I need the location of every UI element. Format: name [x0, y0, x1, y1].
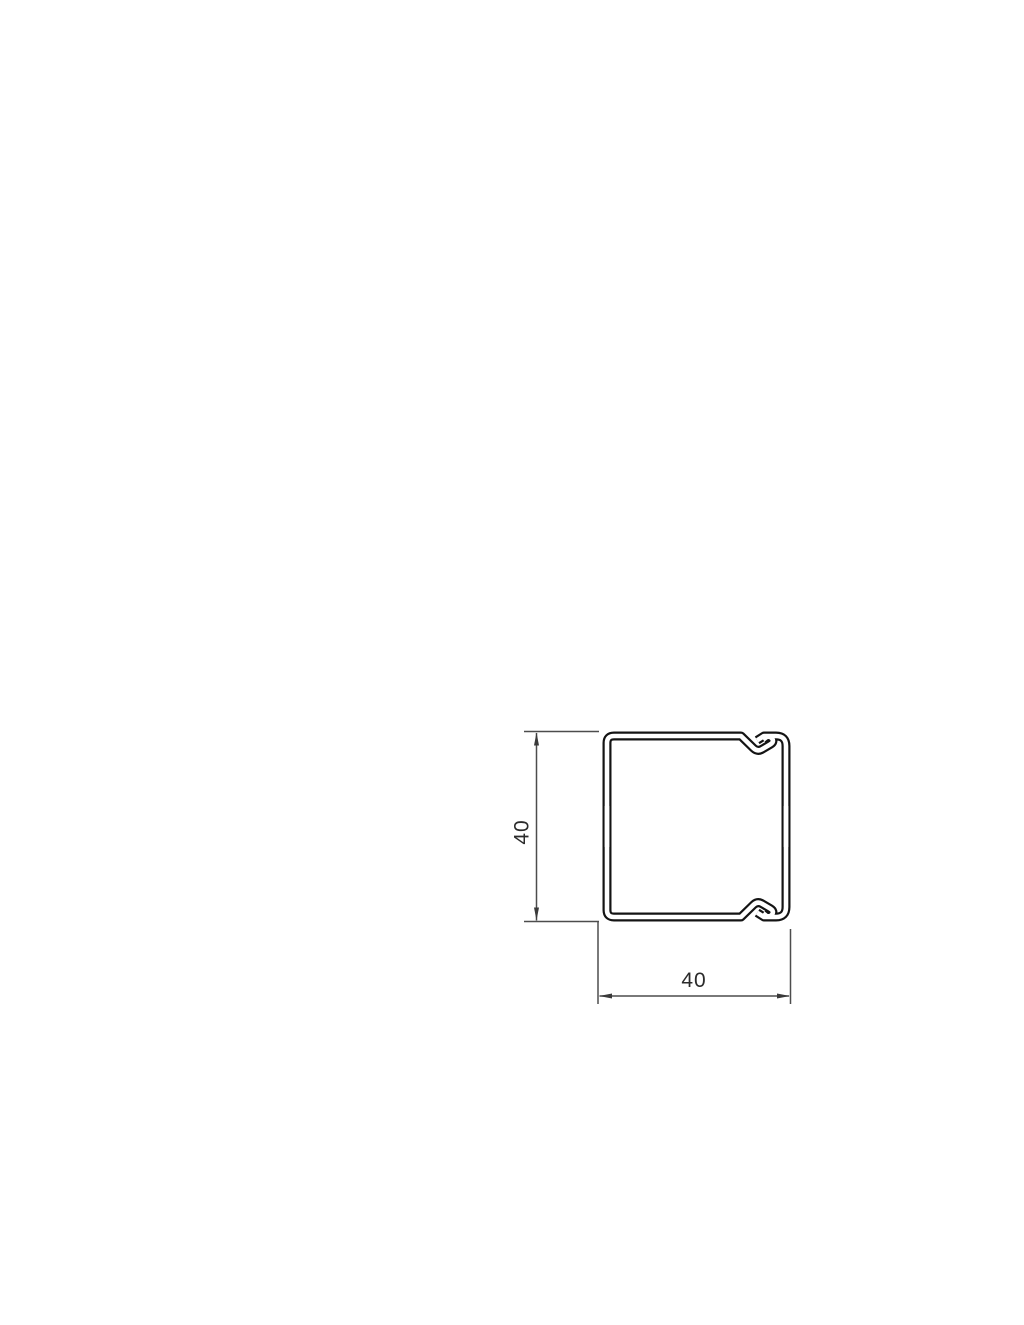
- height-dimension-label: 40: [510, 819, 533, 844]
- profile-drawing-svg: 40 40: [0, 0, 1024, 1325]
- drawing-canvas: 40 40: [0, 0, 1024, 1325]
- width-dimension: 40: [598, 922, 791, 1004]
- width-dimension-label: 40: [681, 969, 706, 992]
- dimension-arrow-down: [534, 908, 539, 921]
- dimension-arrow-left: [599, 994, 612, 999]
- dimension-arrow-right: [777, 994, 790, 999]
- dimension-arrow-up: [534, 733, 539, 746]
- height-dimension: 40: [510, 732, 599, 922]
- trunking-profile: [607, 736, 786, 917]
- profile-wall-core: [607, 736, 786, 917]
- profile-wall-outline: [607, 736, 786, 917]
